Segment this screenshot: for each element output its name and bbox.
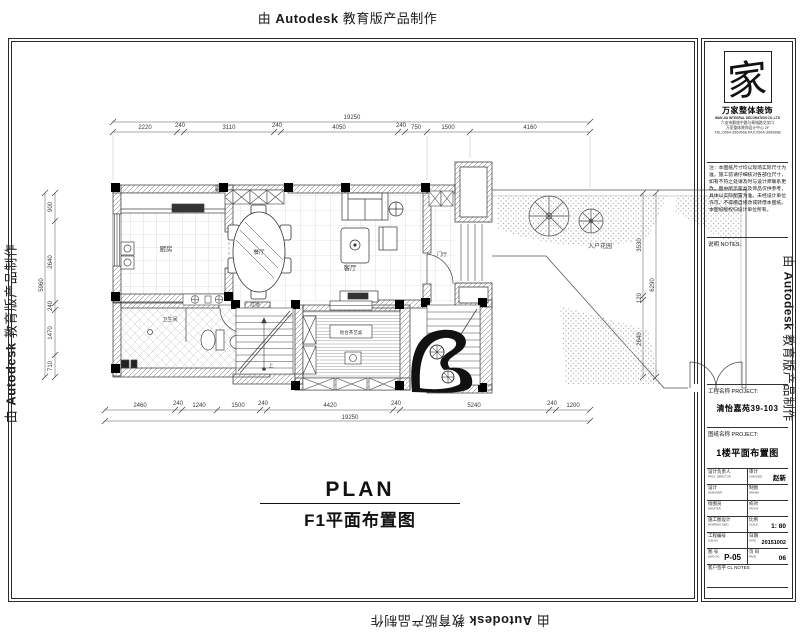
- svg-text:1200: 1200: [566, 403, 580, 409]
- svg-text:19250: 19250: [344, 115, 361, 121]
- drawing-name: 1楼平面布置图: [707, 446, 788, 459]
- title-table: 设计负责人PROJ. DIRECTOR 审计CHECKED赵新 设计DESIGN…: [707, 469, 788, 588]
- svg-text:1500: 1500: [231, 403, 245, 409]
- svg-text:5240: 5240: [467, 403, 481, 409]
- svg-text:2220: 2220: [138, 125, 152, 131]
- scale-value: 1: 80: [771, 523, 786, 530]
- tea-room-windows: [303, 378, 398, 390]
- svg-text:240: 240: [175, 123, 186, 129]
- title-block-content: 家 万家整体装饰 WAN JIA INTEGRAL DECORATION CO.…: [707, 44, 788, 594]
- plan-caption-en: PLAN: [250, 478, 470, 502]
- page-number: 06: [779, 555, 786, 562]
- title-block: 家 万家整体装饰 WAN JIA INTEGRAL DECORATION CO.…: [701, 38, 796, 602]
- svg-text:2460: 2460: [133, 403, 147, 409]
- svg-text:240: 240: [258, 401, 269, 407]
- svg-text:120: 120: [637, 292, 643, 303]
- svg-text:2640: 2640: [637, 332, 643, 346]
- svg-text:3110: 3110: [223, 125, 237, 131]
- svg-text:900: 900: [48, 201, 54, 212]
- svg-text:19250: 19250: [342, 415, 359, 421]
- svg-text:2640: 2640: [48, 255, 54, 269]
- svg-text:240: 240: [272, 123, 283, 129]
- label-stair-up: 上: [269, 362, 274, 368]
- caption-rule: [260, 503, 460, 504]
- notes-paragraph: 注：本图纸尺寸均以现场实际尺寸为准，施工前请仔细核对各部位尺寸，如有不符之处请及…: [707, 163, 788, 218]
- table-row: 图 号DWG NO.P-05 页 码PAGE06: [707, 549, 788, 565]
- project-name: 清怡嘉苑39-103: [707, 403, 788, 414]
- svg-text:1470: 1470: [48, 326, 54, 340]
- floor-plan: 厨房 餐厅 客厅 门厅 卫生间 过道 入户花园 地台茶艺桌 上: [0, 0, 800, 640]
- table-row: 工程编号JOB NO. 日期DATE20151002: [707, 533, 788, 549]
- svg-text:1500: 1500: [441, 125, 455, 131]
- company-logo: 家: [724, 51, 772, 103]
- client-signature-row: 客户签字 CL NOTES: [707, 565, 788, 588]
- notes-paragraph-section: 注：本图纸尺寸均以现场实际尺寸为准，施工前请仔细核对各部位尺寸，如有不符之处请及…: [707, 163, 788, 238]
- logo-section: 家 万家整体装饰 WAN JIA INTEGRAL DECORATION CO.…: [707, 44, 788, 163]
- toilet: [216, 330, 224, 350]
- label-tea-table: 地台茶艺桌: [340, 329, 363, 336]
- svg-text:3530: 3530: [637, 238, 643, 252]
- drawing-label: 图纸名称 PROJECT:: [707, 428, 788, 440]
- svg-text:6290: 6290: [650, 278, 656, 292]
- drawing-section: 图纸名称 PROJECT: 1楼平面布置图: [707, 428, 788, 469]
- svg-text:5960: 5960: [39, 278, 45, 292]
- bay-window-dining: [216, 190, 284, 204]
- table-row: 设计DESIGNER 制图DRAWN: [707, 485, 788, 501]
- project-label: 工程名称 PROJECT:: [707, 385, 788, 397]
- notes-label: 说明 NOTES:: [707, 238, 788, 250]
- shoe-cabinet: [429, 191, 453, 206]
- table-row: 设计负责人PROJ. DIRECTOR 审计CHECKED赵新: [707, 469, 788, 485]
- label-entry: 门厅: [437, 251, 447, 258]
- svg-text:240: 240: [173, 401, 184, 407]
- label-living: 客厅: [344, 263, 358, 272]
- label-bath: 卫生间: [162, 316, 177, 323]
- staircase-main: [236, 308, 293, 374]
- plan-caption-zh: F1平面布置图: [250, 506, 470, 531]
- plan-caption: PLAN F1平面布置图: [250, 478, 470, 531]
- logo-glyph: 家: [726, 45, 768, 109]
- svg-text:1240: 1240: [192, 403, 206, 409]
- notes-section: 说明 NOTES:: [707, 238, 788, 385]
- svg-text:240: 240: [547, 401, 558, 407]
- company-address: 六安市解放中路与皋城路交叉口 万家整体装饰设计中心 2F TEL:0564-39…: [709, 120, 786, 135]
- sheet-number: P-05: [724, 553, 741, 562]
- svg-text:750: 750: [411, 125, 422, 131]
- label-corridor: 过道: [250, 301, 260, 308]
- table-row: 施工图设计WORKING DWG. 比例SCALE1: 80: [707, 517, 788, 533]
- svg-text:710: 710: [48, 360, 54, 371]
- svg-text:4160: 4160: [523, 125, 537, 131]
- company-name: 万家整体装饰: [707, 105, 788, 116]
- date-value: 20151002: [762, 540, 786, 546]
- svg-text:240: 240: [48, 300, 54, 311]
- armchair: [379, 227, 397, 250]
- company-name-en: WAN JIA INTEGRAL DECORATION CO.,LTD: [711, 116, 784, 120]
- project-section: 工程名称 PROJECT: 清怡嘉苑39-103: [707, 385, 788, 428]
- porch-steps: [461, 224, 482, 281]
- svg-text:4420: 4420: [323, 403, 337, 409]
- svg-text:4050: 4050: [332, 125, 346, 131]
- table-row: 绘图员DRAFTER 校对PROOF: [707, 501, 788, 517]
- cad-sheet: 由 Autodesk 教育版产品制作 由 Autodesk 教育版产品制作 由 …: [0, 0, 800, 640]
- label-garden: 入户花园: [588, 242, 612, 250]
- label-kitchen: 厨房: [160, 244, 173, 253]
- label-dining: 餐厅: [253, 248, 265, 256]
- checker-name: 赵新: [773, 472, 786, 482]
- svg-text:240: 240: [396, 123, 407, 129]
- svg-text:240: 240: [391, 401, 402, 407]
